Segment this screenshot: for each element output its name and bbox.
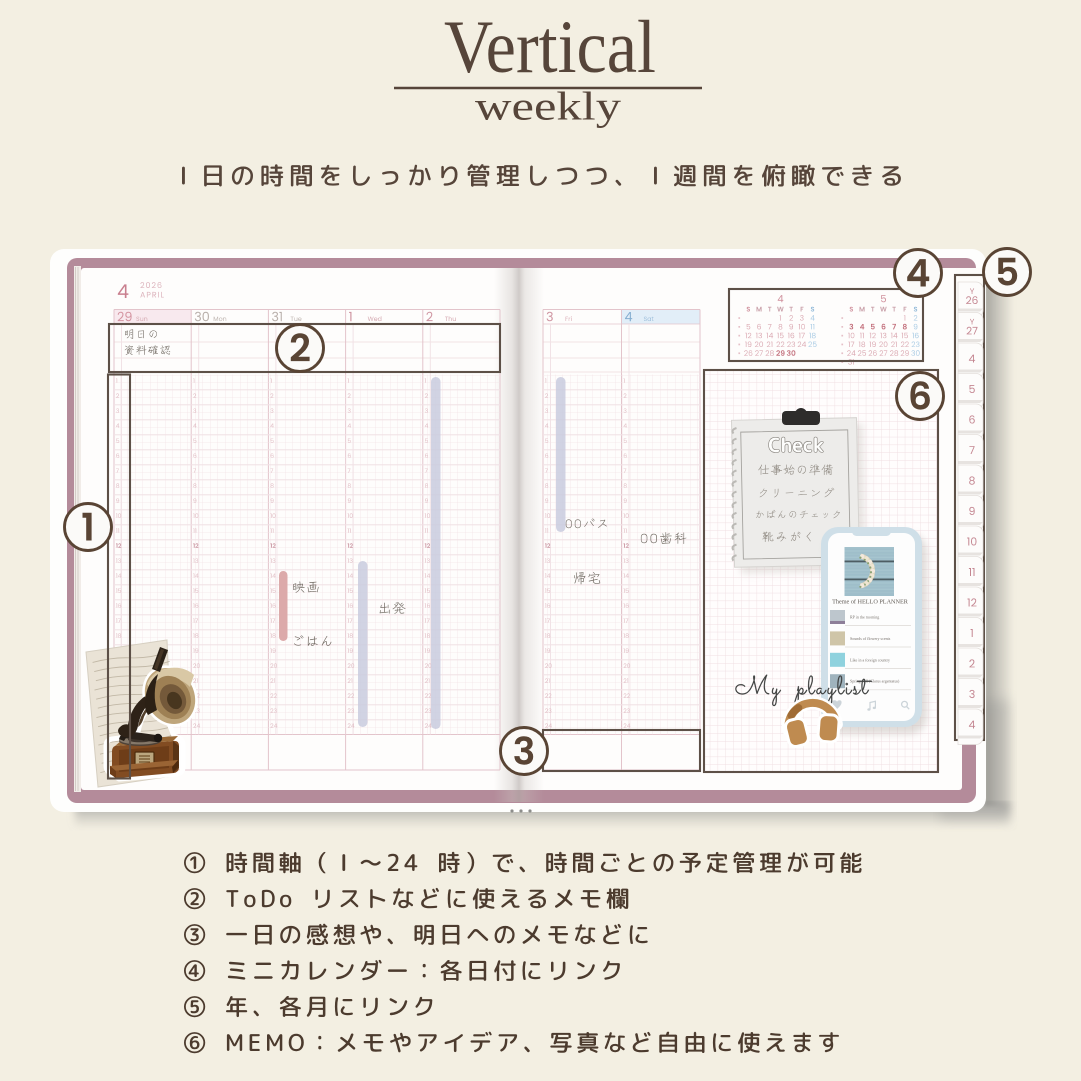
svg-text:RP in the morning: RP in the morning: [850, 615, 879, 620]
svg-text:Vertical: Vertical: [444, 6, 656, 89]
svg-text:weekly: weekly: [475, 84, 621, 129]
svg-text:Theme of HELLO PLANNER: Theme of HELLO PLANNER: [832, 599, 909, 606]
svg-text:Like in a foreign country: Like in a foreign country: [850, 657, 890, 662]
svg-text:Sounds of flowery scents: Sounds of flowery scents: [850, 636, 891, 641]
